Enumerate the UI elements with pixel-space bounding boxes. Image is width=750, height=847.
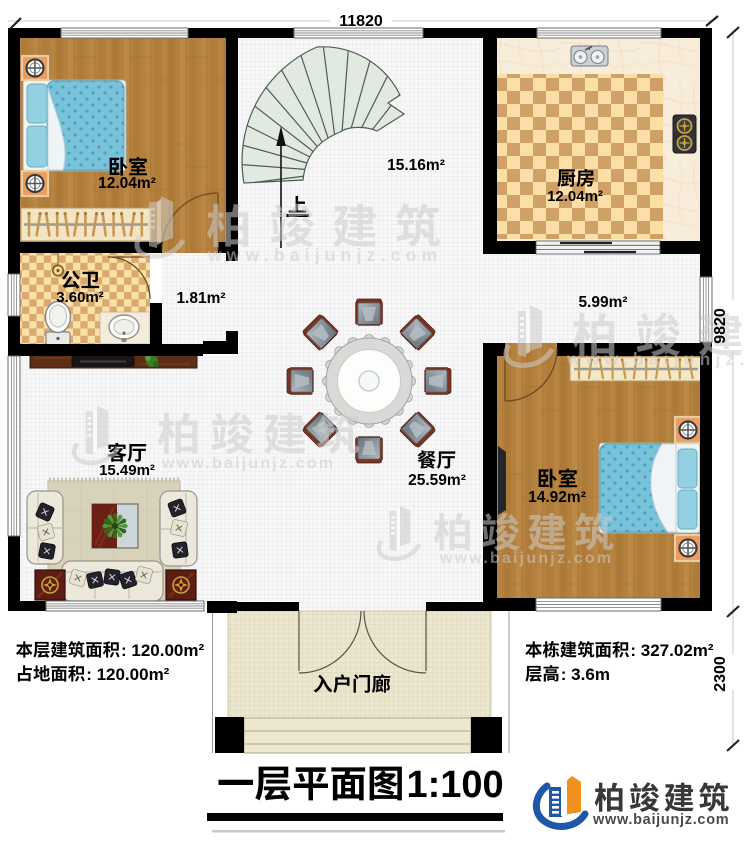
svg-text:12.04m²: 12.04m² [547, 188, 603, 205]
svg-text:15.16m²: 15.16m² [387, 157, 445, 174]
svg-text:: 327.02m²: : 327.02m² [630, 641, 713, 660]
svg-text:1:100: 1:100 [407, 764, 504, 806]
svg-text:www.baijunjz.com: www.baijunjz.com [439, 550, 613, 567]
svg-text:9820: 9820 [712, 308, 729, 344]
svg-text:: 120.00m²: : 120.00m² [86, 665, 169, 684]
svg-text:2300: 2300 [712, 656, 729, 692]
svg-text:www.baijunjz.com: www.baijunjz.com [161, 455, 335, 472]
svg-text:1.81m²: 1.81m² [176, 290, 225, 307]
svg-text:www.baijunjz.com: www.baijunjz.com [207, 245, 442, 265]
svg-text:25.59m²: 25.59m² [408, 472, 466, 489]
svg-text:15.49m²: 15.49m² [99, 462, 155, 479]
svg-text:3.60m²: 3.60m² [56, 289, 104, 306]
svg-text:11820: 11820 [339, 13, 383, 30]
svg-text:5.99m²: 5.99m² [578, 294, 627, 311]
svg-text:14.92m²: 14.92m² [528, 489, 586, 506]
svg-text:: 3.6m: : 3.6m [561, 665, 610, 684]
svg-text:www.baijunjz.com: www.baijunjz.com [592, 812, 729, 828]
svg-text:: 120.00m²: : 120.00m² [121, 641, 204, 660]
svg-text:12.04m²: 12.04m² [98, 175, 156, 192]
svg-text:www.baijunjz.com: www.baijunjz.com [566, 349, 750, 369]
